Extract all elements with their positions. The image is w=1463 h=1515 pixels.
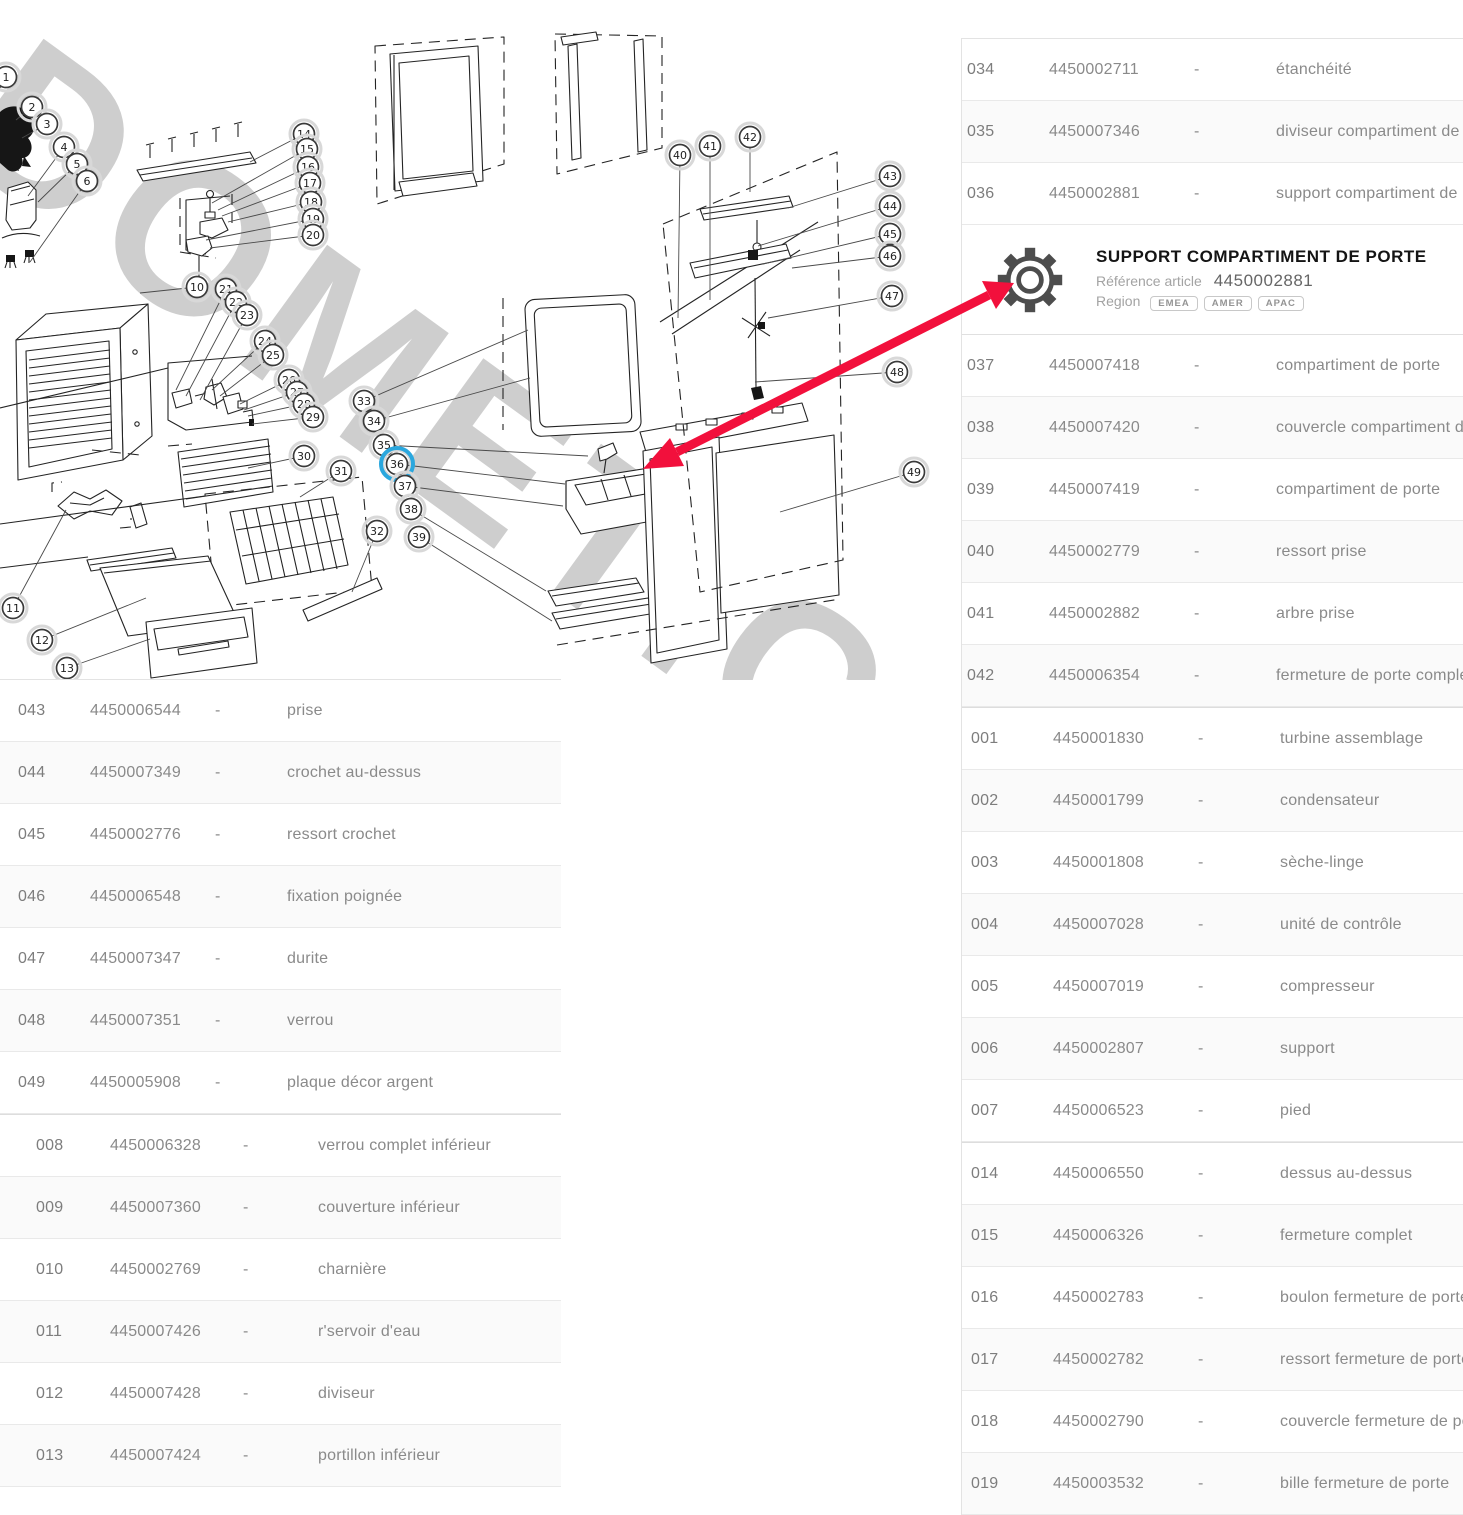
callout-31[interactable]: 31 <box>327 457 355 485</box>
region-badge: APAC <box>1258 296 1304 311</box>
part-reference: 4450006326 <box>1053 1205 1198 1266</box>
callout-38[interactable]: 38 <box>397 495 425 523</box>
part-reference: 4450007420 <box>1049 397 1194 458</box>
part-description: fermeture complet <box>1280 1205 1463 1266</box>
part-index: 001 <box>971 708 1053 769</box>
part-description: couverture inférieur <box>318 1177 561 1238</box>
table-row[interactable]: 008 4450006328 - verrou complet inférieu… <box>0 1115 561 1177</box>
region-line: Region EMEAAMERAPAC <box>1096 293 1427 311</box>
callout-25[interactable]: 25 <box>259 341 287 369</box>
part-description: bille fermeture de porte <box>1280 1453 1463 1514</box>
table-row[interactable]: 019 4450003532 - bille fermeture de port… <box>962 1453 1463 1515</box>
table-row[interactable]: 040 4450002779 - ressort prise <box>962 521 1463 583</box>
part-dash: - <box>243 1425 318 1486</box>
svg-text:37: 37 <box>398 480 412 493</box>
table-row[interactable]: 006 4450002807 - support <box>962 1018 1463 1080</box>
part-reference: 4450007351 <box>90 990 215 1051</box>
callout-32[interactable]: 32 <box>363 517 391 545</box>
table-row[interactable]: 018 4450002790 - couvercle fermeture de … <box>962 1391 1463 1453</box>
vent-grille-part <box>178 439 273 507</box>
part-reference: 4450006328 <box>110 1115 243 1176</box>
part-reference: 4450007418 <box>1049 335 1194 396</box>
part-description: boulon fermeture de porte <box>1280 1267 1463 1328</box>
part-dash: - <box>1194 39 1276 100</box>
part-index: 018 <box>971 1391 1053 1452</box>
part-reference: 4450002783 <box>1053 1267 1198 1328</box>
table-row[interactable]: 010 4450002769 - charnière <box>0 1239 561 1301</box>
svg-text:3: 3 <box>44 118 51 131</box>
part-reference: 4450006550 <box>1053 1143 1198 1204</box>
table-row[interactable]: 017 4450002782 - ressort fermeture de po… <box>962 1329 1463 1391</box>
part-dash: - <box>215 1052 287 1113</box>
trim-strips-part <box>555 32 662 174</box>
part-reference: 4450002769 <box>110 1239 243 1300</box>
callout-39[interactable]: 39 <box>405 523 433 551</box>
part-reference: 4450006548 <box>90 866 215 927</box>
table-row[interactable]: 047 4450007347 - durite <box>0 928 561 990</box>
part-dash: - <box>1194 163 1276 224</box>
part-description: arbre prise <box>1276 583 1463 644</box>
part-dash: - <box>1194 645 1276 706</box>
part-description: crochet au-dessus <box>287 742 561 803</box>
callout-44[interactable]: 44 <box>876 192 904 220</box>
part-dash: - <box>1198 1329 1280 1390</box>
part-description: r'servoir d'eau <box>318 1301 561 1362</box>
part-index: 004 <box>971 894 1053 955</box>
table-row[interactable]: 015 4450006326 - fermeture complet <box>962 1205 1463 1267</box>
part-index: 043 <box>18 680 90 741</box>
parts-table-right-a: 034 4450002711 - étanchéité 035 44500073… <box>962 39 1463 225</box>
callout-23[interactable]: 23 <box>233 301 261 329</box>
part-reference: 4450002779 <box>1049 521 1194 582</box>
part-description: unité de contrôle <box>1280 894 1463 955</box>
part-index: 010 <box>36 1239 110 1300</box>
callout-20[interactable]: 20 <box>299 221 327 249</box>
callout-47[interactable]: 47 <box>878 282 906 310</box>
part-reference: 4450002782 <box>1053 1329 1198 1390</box>
svg-text:30: 30 <box>297 450 311 463</box>
svg-text:6: 6 <box>84 175 91 188</box>
part-dash: - <box>1194 459 1276 520</box>
parts-table-right-c: 001 4450001830 - turbine assemblage 002 … <box>962 707 1463 1142</box>
callout-41[interactable]: 41 <box>696 132 724 160</box>
svg-text:2: 2 <box>29 101 36 114</box>
table-row[interactable]: 049 4450005908 - plaque décor argent <box>0 1052 561 1114</box>
part-dash: - <box>215 866 287 927</box>
part-description: sèche-linge <box>1280 832 1463 893</box>
part-reference: 4450007428 <box>110 1363 243 1424</box>
part-dash: - <box>243 1177 318 1238</box>
part-dash: - <box>1198 708 1280 769</box>
svg-text:48: 48 <box>890 366 904 379</box>
parts-catalog-page: { "colors":{"arrow_red":"#f2103c","highl… <box>0 0 1463 1463</box>
part-reference: 4450001799 <box>1053 770 1198 831</box>
parts-table-left: 043 4450006544 - prise 044 4450007349 - … <box>0 679 561 1487</box>
part-index: 009 <box>36 1177 110 1238</box>
part-dash: - <box>1198 1205 1280 1266</box>
part-description: fixation poignée <box>287 866 561 927</box>
part-description: dessus au-dessus <box>1280 1143 1463 1204</box>
part-index: 047 <box>18 928 90 989</box>
callout-11[interactable]: 11 <box>0 594 27 622</box>
part-reference: 4450007419 <box>1049 459 1194 520</box>
part-reference: 4450002776 <box>90 804 215 865</box>
part-reference: 4450007347 <box>90 928 215 989</box>
part-reference: 4450007426 <box>110 1301 243 1362</box>
svg-text:38: 38 <box>404 503 418 516</box>
part-reference: 4450003532 <box>1053 1453 1198 1514</box>
region-badges: EMEAAMERAPAC <box>1144 293 1304 309</box>
part-dash: - <box>243 1115 318 1176</box>
table-row[interactable]: 048 4450007351 - verrou <box>0 990 561 1052</box>
part-index: 011 <box>36 1301 110 1362</box>
part-description: support compartiment de porte <box>1276 163 1463 224</box>
region-label: Region <box>1096 293 1140 309</box>
table-row[interactable]: 014 4450006550 - dessus au-dessus <box>962 1143 1463 1205</box>
svg-text:41: 41 <box>703 140 717 153</box>
svg-text:4: 4 <box>61 141 68 154</box>
part-dash: - <box>1198 1143 1280 1204</box>
table-row[interactable]: 002 4450001799 - condensateur <box>962 770 1463 832</box>
svg-text:36: 36 <box>390 458 404 471</box>
part-dash: - <box>215 804 287 865</box>
region-badge: AMER <box>1204 296 1252 311</box>
part-index: 016 <box>971 1267 1053 1328</box>
part-index: 042 <box>967 645 1049 706</box>
part-reference: 4450005908 <box>90 1052 215 1113</box>
part-description: prise <box>287 680 561 741</box>
part-index: 038 <box>967 397 1049 458</box>
table-row[interactable]: 001 4450001830 - turbine assemblage <box>962 708 1463 770</box>
selected-part-title: SUPPORT COMPARTIMENT DE PORTE <box>1096 247 1427 267</box>
svg-text:32: 32 <box>370 525 384 538</box>
table-row[interactable]: 005 4450007019 - compresseur <box>962 956 1463 1018</box>
table-row[interactable]: 041 4450002882 - arbre prise <box>962 583 1463 645</box>
part-reference: 4450001808 <box>1053 832 1198 893</box>
selected-part-info: SUPPORT COMPARTIMENT DE PORTE Référence … <box>1096 247 1427 313</box>
door-frame-part <box>375 37 504 204</box>
callout-29[interactable]: 29 <box>299 403 327 431</box>
part-dash: - <box>215 990 287 1051</box>
part-reference: 4450002881 <box>1049 163 1194 224</box>
part-reference: 4450006523 <box>1053 1080 1198 1141</box>
svg-text:20: 20 <box>306 229 320 242</box>
table-row[interactable]: 034 4450002711 - étanchéité <box>962 39 1463 101</box>
table-row[interactable]: 044 4450007349 - crochet au-dessus <box>0 742 561 804</box>
part-description: portillon inférieur <box>318 1425 561 1486</box>
reference-label: Référence article <box>1096 273 1202 289</box>
part-index: 046 <box>18 866 90 927</box>
part-dash: - <box>1198 1018 1280 1079</box>
table-row[interactable]: 003 4450001808 - sèche-linge <box>962 832 1463 894</box>
table-row[interactable]: 039 4450007419 - compartiment de porte <box>962 459 1463 521</box>
part-reference: 4450006354 <box>1049 645 1194 706</box>
callout-10[interactable]: 10 <box>183 273 211 301</box>
part-description: condensateur <box>1280 770 1463 831</box>
part-dash: - <box>1198 770 1280 831</box>
part-dash: - <box>1198 832 1280 893</box>
table-row[interactable]: 037 4450007418 - compartiment de porte <box>962 335 1463 397</box>
reference-value: 4450002881 <box>1214 271 1314 290</box>
parts-table-right-d: 014 4450006550 - dessus au-dessus 015 44… <box>962 1142 1463 1515</box>
part-description: support <box>1280 1018 1463 1079</box>
svg-text:47: 47 <box>885 290 899 303</box>
part-description: ressort fermeture de porte <box>1280 1329 1463 1390</box>
callout-6[interactable]: 6 <box>73 167 101 195</box>
svg-text:34: 34 <box>367 415 381 428</box>
part-index: 036 <box>967 163 1049 224</box>
selected-part-card[interactable]: SUPPORT COMPARTIMENT DE PORTE Référence … <box>962 225 1463 335</box>
part-dash: - <box>1198 894 1280 955</box>
svg-text:31: 31 <box>334 465 348 478</box>
part-index: 037 <box>967 335 1049 396</box>
part-index: 014 <box>971 1143 1053 1204</box>
part-index: 039 <box>967 459 1049 520</box>
part-index: 019 <box>971 1453 1053 1514</box>
parts-diagram: DOMETIC <box>0 0 961 680</box>
part-reference: 4450007424 <box>110 1425 243 1486</box>
part-dash: - <box>215 680 287 741</box>
part-reference: 4450007019 <box>1053 956 1198 1017</box>
table-row[interactable]: 004 4450007028 - unité de contrôle <box>962 894 1463 956</box>
part-dash: - <box>1194 101 1276 162</box>
part-description: couvercle compartiment de porte <box>1276 397 1463 458</box>
table-row[interactable]: 013 4450007424 - portillon inférieur <box>0 1425 561 1487</box>
part-reference: 4450002790 <box>1053 1391 1198 1452</box>
table-row[interactable]: 016 4450002783 - boulon fermeture de por… <box>962 1267 1463 1329</box>
gear-icon <box>994 244 1066 316</box>
part-dash: - <box>243 1301 318 1362</box>
callout-13[interactable]: 13 <box>53 654 81 680</box>
part-dash: - <box>243 1363 318 1424</box>
part-description: couvercle fermeture de porte <box>1280 1391 1463 1452</box>
part-description: durite <box>287 928 561 989</box>
part-description: verrou <box>287 990 561 1051</box>
callout-49[interactable]: 49 <box>900 458 928 486</box>
callout-30[interactable]: 30 <box>290 442 318 470</box>
part-description: ressort crochet <box>287 804 561 865</box>
part-description: compartiment de porte <box>1276 335 1463 396</box>
part-dash: - <box>1198 1453 1280 1514</box>
part-index: 049 <box>18 1052 90 1113</box>
part-reference: 4450002882 <box>1049 583 1194 644</box>
callout-43[interactable]: 43 <box>876 162 904 190</box>
part-dash: - <box>243 1239 318 1300</box>
part-index: 008 <box>36 1115 110 1176</box>
part-dash: - <box>1198 1391 1280 1452</box>
svg-text:13: 13 <box>60 662 74 675</box>
part-index: 003 <box>971 832 1053 893</box>
part-description: pied <box>1280 1080 1463 1141</box>
callout-1[interactable]: 1 <box>0 63 20 91</box>
part-description: diviseur compartiment de porte <box>1276 101 1463 162</box>
part-description: étanchéité <box>1276 39 1463 100</box>
svg-text:44: 44 <box>883 200 897 213</box>
part-index: 045 <box>18 804 90 865</box>
table-row[interactable]: 045 4450002776 - ressort crochet <box>0 804 561 866</box>
part-description: turbine assemblage <box>1280 708 1463 769</box>
part-dash: - <box>215 742 287 803</box>
part-index: 035 <box>967 101 1049 162</box>
part-index: 017 <box>971 1329 1053 1390</box>
part-reference: 4450007360 <box>110 1177 243 1238</box>
door-seal-part <box>525 294 642 437</box>
part-index: 013 <box>36 1425 110 1486</box>
part-description: ressort prise <box>1276 521 1463 582</box>
part-dash: - <box>215 928 287 989</box>
table-row[interactable]: 035 4450007346 - diviseur compartiment d… <box>962 101 1463 163</box>
table-row[interactable]: 012 4450007428 - diviseur <box>0 1363 561 1425</box>
part-description: verrou complet inférieur <box>318 1115 561 1176</box>
svg-text:45: 45 <box>883 228 897 241</box>
svg-text:40: 40 <box>673 149 687 162</box>
table-row[interactable]: 009 4450007360 - couverture inférieur <box>0 1177 561 1239</box>
svg-text:49: 49 <box>907 466 921 479</box>
part-index: 005 <box>971 956 1053 1017</box>
callout-45[interactable]: 45 <box>876 220 904 248</box>
table-row[interactable]: 043 4450006544 - prise <box>0 680 561 742</box>
part-index: 034 <box>967 39 1049 100</box>
part-reference: 4450001830 <box>1053 708 1198 769</box>
part-dash: - <box>1194 397 1276 458</box>
callout-12[interactable]: 12 <box>28 626 56 654</box>
part-dash: - <box>1198 956 1280 1017</box>
part-reference: 4450002807 <box>1053 1018 1198 1079</box>
part-reference: 4450007346 <box>1049 101 1194 162</box>
part-description: charnière <box>318 1239 561 1300</box>
svg-text:23: 23 <box>240 309 254 322</box>
svg-text:29: 29 <box>306 411 320 424</box>
svg-text:10: 10 <box>190 281 204 294</box>
part-reference: 4450006544 <box>90 680 215 741</box>
svg-text:42: 42 <box>743 131 757 144</box>
part-index: 006 <box>971 1018 1053 1079</box>
part-index: 044 <box>18 742 90 803</box>
part-index: 040 <box>967 521 1049 582</box>
part-index: 048 <box>18 990 90 1051</box>
part-reference: 4450007028 <box>1053 894 1198 955</box>
part-dash: - <box>1194 521 1276 582</box>
part-index: 002 <box>971 770 1053 831</box>
svg-text:33: 33 <box>357 395 371 408</box>
svg-text:39: 39 <box>412 531 426 544</box>
table-row[interactable]: 042 4450006354 - fermeture de porte comp… <box>962 645 1463 707</box>
part-reference: 4450007349 <box>90 742 215 803</box>
svg-text:11: 11 <box>6 602 20 615</box>
part-description: compresseur <box>1280 956 1463 1017</box>
callout-48[interactable]: 48 <box>883 358 911 386</box>
svg-text:12: 12 <box>35 634 49 647</box>
part-description: compartiment de porte <box>1276 459 1463 520</box>
part-reference: 4450002711 <box>1049 39 1194 100</box>
table-row[interactable]: 038 4450007420 - couvercle compartiment … <box>962 397 1463 459</box>
callout-40[interactable]: 40 <box>666 141 694 169</box>
part-index: 041 <box>967 583 1049 644</box>
svg-text:46: 46 <box>883 250 897 263</box>
svg-text:1: 1 <box>3 71 10 84</box>
parts-table-right: 034 4450002711 - étanchéité 035 44500073… <box>961 38 1463 1515</box>
part-index: 007 <box>971 1080 1053 1141</box>
parts-table-left-main: 043 4450006544 - prise 044 4450007349 - … <box>0 679 561 1114</box>
table-row[interactable]: 007 4450006523 - pied <box>962 1080 1463 1142</box>
reference-line: Référence article 4450002881 <box>1096 271 1427 291</box>
part-dash: - <box>1194 583 1276 644</box>
part-dash: - <box>1194 335 1276 396</box>
callout-46[interactable]: 46 <box>876 242 904 270</box>
svg-text:25: 25 <box>266 349 280 362</box>
part-index: 015 <box>971 1205 1053 1266</box>
svg-text:43: 43 <box>883 170 897 183</box>
parts-table-right-b: 037 4450007418 - compartiment de porte 0… <box>962 335 1463 707</box>
parts-table-left-sub: 008 4450006328 - verrou complet inférieu… <box>0 1114 561 1487</box>
table-row[interactable]: 046 4450006548 - fixation poignée <box>0 866 561 928</box>
part-description: fermeture de porte complet <box>1276 645 1463 706</box>
part-description: diviseur <box>318 1363 561 1424</box>
table-row[interactable]: 011 4450007426 - r'servoir d'eau <box>0 1301 561 1363</box>
part-dash: - <box>1198 1267 1280 1328</box>
table-row[interactable]: 036 4450002881 - support compartiment de… <box>962 163 1463 225</box>
part-description: plaque décor argent <box>287 1052 561 1113</box>
callout-42[interactable]: 42 <box>736 123 764 151</box>
region-badge: EMEA <box>1150 296 1197 311</box>
part-dash: - <box>1198 1080 1280 1141</box>
part-index: 012 <box>36 1363 110 1424</box>
